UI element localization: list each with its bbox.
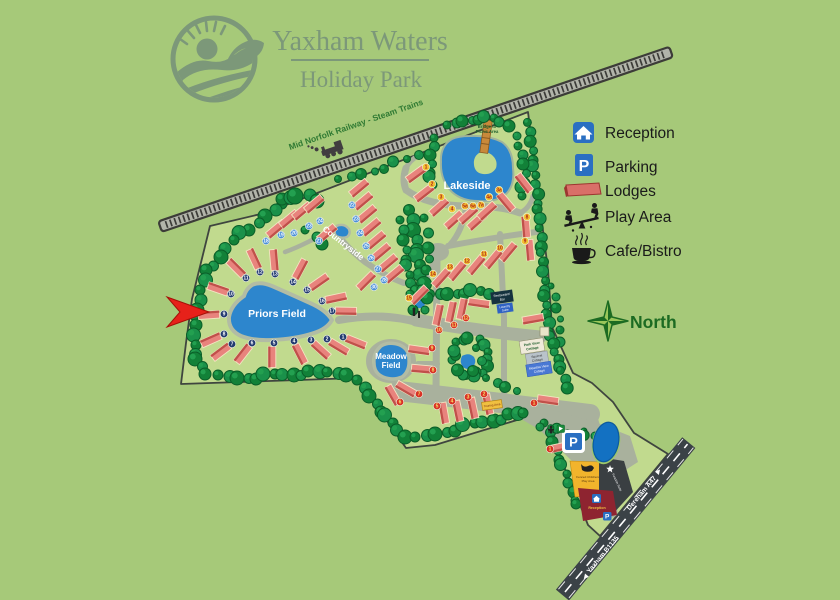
- svg-text:P: P: [605, 514, 610, 521]
- svg-text:7: 7: [231, 342, 234, 348]
- svg-text:8: 8: [526, 215, 529, 221]
- svg-text:3a: 3a: [496, 188, 502, 194]
- svg-text:23: 23: [306, 224, 312, 230]
- svg-text:Reception: Reception: [605, 125, 675, 142]
- svg-text:North: North: [630, 312, 677, 332]
- svg-text:7: 7: [418, 392, 421, 398]
- svg-text:3: 3: [467, 395, 470, 401]
- svg-text:19: 19: [278, 233, 284, 239]
- svg-text:Picnic Area: Picnic Area: [476, 129, 499, 134]
- svg-text:5a: 5a: [462, 204, 468, 210]
- svg-text:Cafe/Bistro: Cafe/Bistro: [605, 243, 682, 260]
- svg-text:Play Area: Play Area: [582, 479, 595, 483]
- svg-text:Lodges: Lodges: [605, 183, 656, 200]
- svg-text:Holiday Park: Holiday Park: [300, 67, 423, 92]
- svg-text:30: 30: [371, 285, 377, 291]
- svg-text:1: 1: [549, 447, 552, 453]
- svg-text:12: 12: [464, 259, 470, 265]
- svg-text:16: 16: [319, 299, 325, 305]
- svg-text:13: 13: [447, 265, 453, 271]
- svg-text:7a: 7a: [478, 203, 484, 209]
- svg-text:18: 18: [263, 239, 269, 245]
- svg-text:23: 23: [353, 217, 359, 223]
- svg-text:2: 2: [431, 182, 434, 188]
- svg-text:6: 6: [251, 341, 254, 347]
- svg-text:22: 22: [349, 203, 355, 209]
- svg-text:11: 11: [481, 252, 487, 258]
- svg-text:1: 1: [533, 401, 536, 407]
- svg-text:4a: 4a: [486, 195, 492, 201]
- svg-text:12: 12: [257, 270, 263, 276]
- svg-text:1: 1: [342, 335, 345, 341]
- svg-text:Priors Field: Priors Field: [248, 308, 306, 320]
- svg-text:8: 8: [223, 332, 226, 338]
- svg-text:14: 14: [290, 280, 296, 286]
- svg-text:3: 3: [310, 338, 313, 344]
- svg-text:25: 25: [363, 244, 369, 250]
- svg-text:24: 24: [357, 231, 363, 237]
- svg-text:8: 8: [432, 368, 435, 374]
- svg-text:28: 28: [381, 278, 387, 284]
- svg-text:3: 3: [440, 195, 443, 201]
- svg-text:10: 10: [436, 328, 442, 334]
- svg-text:9: 9: [524, 239, 527, 245]
- svg-text:5: 5: [273, 341, 276, 347]
- svg-text:Field: Field: [382, 361, 401, 370]
- svg-text:P: P: [579, 158, 590, 175]
- svg-text:Parking: Parking: [605, 159, 658, 176]
- svg-text:2: 2: [326, 337, 329, 343]
- svg-text:6: 6: [399, 400, 402, 406]
- svg-text:Lakeside: Lakeside: [443, 180, 490, 192]
- svg-text:20: 20: [291, 231, 297, 237]
- svg-text:11: 11: [243, 276, 249, 282]
- svg-text:14: 14: [430, 272, 436, 278]
- svg-text:27: 27: [375, 267, 381, 273]
- svg-text:15: 15: [406, 296, 412, 302]
- svg-text:Meadow: Meadow: [375, 352, 407, 361]
- svg-text:13: 13: [272, 272, 278, 278]
- svg-text:15: 15: [304, 288, 310, 294]
- svg-text:4: 4: [451, 207, 454, 213]
- svg-text:26: 26: [368, 256, 374, 262]
- svg-text:Reception: Reception: [588, 506, 605, 510]
- svg-text:24: 24: [317, 219, 323, 225]
- svg-text:5: 5: [436, 404, 439, 410]
- svg-text:10: 10: [228, 292, 234, 298]
- svg-text:4: 4: [451, 399, 454, 405]
- svg-text:11: 11: [451, 323, 457, 329]
- svg-text:Yaxham Waters: Yaxham Waters: [272, 26, 448, 57]
- svg-text:6a: 6a: [470, 204, 476, 210]
- svg-text:9: 9: [223, 312, 226, 318]
- svg-text:Play Area: Play Area: [605, 209, 672, 226]
- svg-text:17: 17: [329, 309, 335, 315]
- svg-text:P: P: [569, 435, 578, 450]
- svg-text:4: 4: [293, 339, 296, 345]
- svg-text:1: 1: [425, 165, 428, 171]
- svg-text:21: 21: [316, 239, 322, 245]
- svg-text:10: 10: [497, 246, 503, 252]
- svg-text:9: 9: [431, 346, 434, 352]
- svg-text:2: 2: [483, 392, 486, 398]
- svg-text:12: 12: [463, 316, 469, 322]
